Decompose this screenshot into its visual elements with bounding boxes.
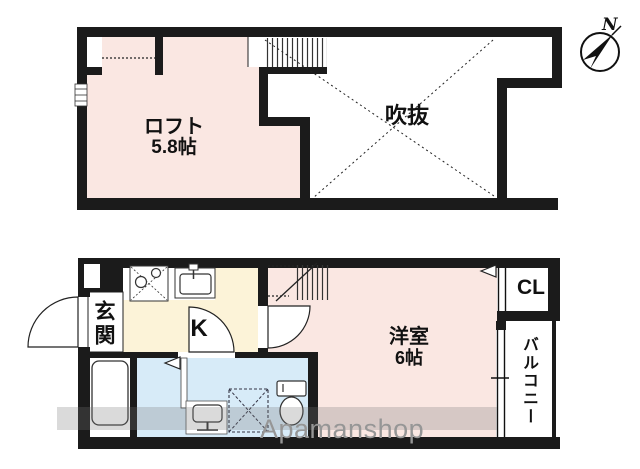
closet-door-icon — [497, 268, 507, 311]
closet-label: CL — [507, 277, 555, 299]
entrance-label: 玄関 — [93, 297, 114, 351]
floorplan-image: Apamanshop ロフト 5.8帖 吹抜 玄関 K 洋室 6帖 CL バルコ… — [0, 0, 640, 469]
watermark-text: Apamanshop — [260, 414, 424, 445]
loft-label: ロフト — [134, 117, 214, 138]
wall-segment — [235, 352, 318, 358]
wall-segment — [77, 27, 562, 37]
wall-segment — [497, 311, 560, 321]
balcony-label: バルコニー — [520, 328, 536, 434]
wall-segment — [552, 27, 562, 88]
wall-niche — [84, 264, 100, 288]
wall-segment — [496, 321, 506, 330]
top-right-shaft — [507, 37, 552, 78]
entrance-door-swing-icon — [28, 297, 78, 347]
floorplan-drawing — [0, 0, 640, 469]
void-label: 吹抜 — [367, 104, 447, 127]
balcony-rail — [552, 321, 556, 437]
sink-icon — [175, 264, 215, 298]
loft-recess — [87, 37, 102, 67]
wall-segment — [258, 265, 268, 306]
loft-size-label: 5.8帖 — [134, 138, 214, 158]
wall-segment — [497, 78, 507, 210]
wall-segment — [300, 117, 310, 202]
compass-north-label: N — [602, 15, 618, 35]
wall-segment — [78, 352, 178, 358]
window-icon — [75, 84, 87, 106]
washroom-partition — [181, 358, 187, 408]
loft-floor-step — [259, 126, 300, 198]
room-label: 洋室 — [369, 327, 449, 348]
wall-segment — [259, 67, 327, 74]
stairs-icon — [264, 38, 327, 67]
room-size-label: 6帖 — [369, 349, 449, 368]
wall-segment — [77, 198, 558, 210]
stove-icon — [130, 266, 168, 301]
wall-segment — [155, 37, 163, 75]
wall-segment — [87, 67, 102, 75]
kitchen-label: K — [185, 316, 213, 341]
wall-segment — [77, 27, 87, 210]
